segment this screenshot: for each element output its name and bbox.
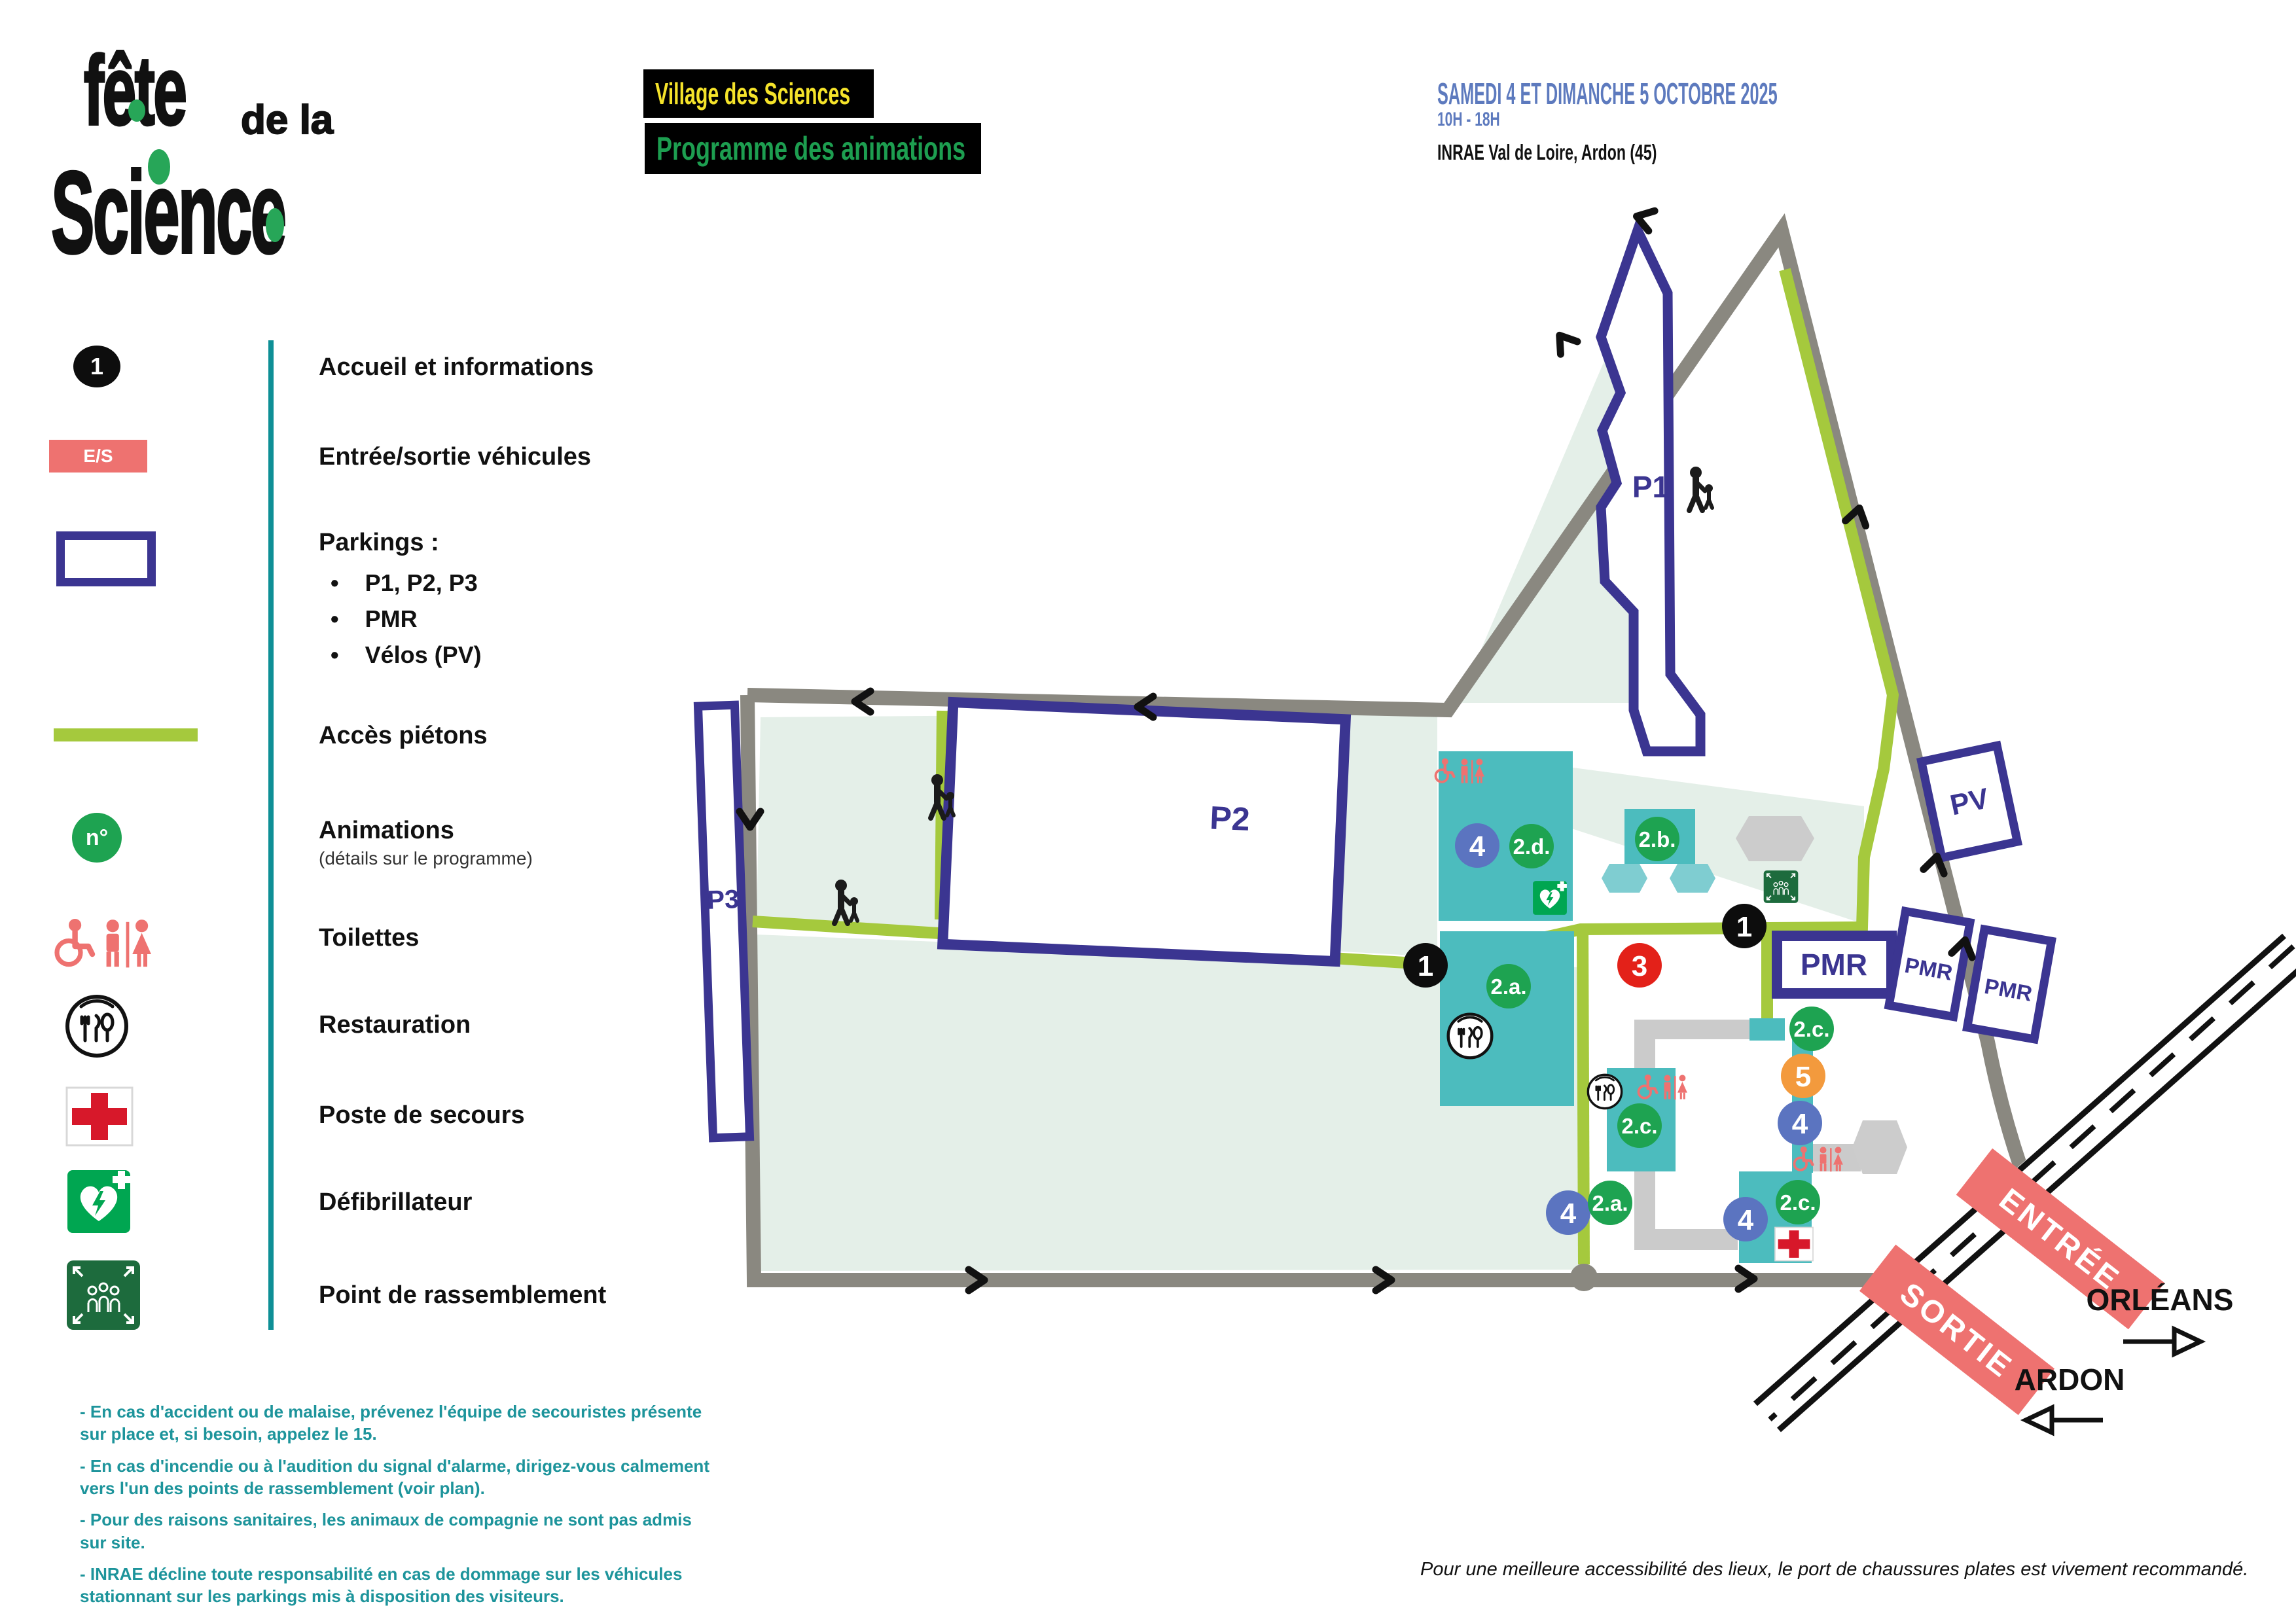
- logo-de-la: de la: [241, 97, 333, 143]
- safety-note: - INRAE décline toute responsabilité en …: [80, 1563, 721, 1608]
- marker-label: 4: [1792, 1108, 1808, 1140]
- building-2b-hex-right: [1670, 864, 1715, 893]
- logo-dot-icon: [148, 149, 170, 185]
- es-badge-icon: E/S: [49, 440, 147, 473]
- legend-secours-label: Poste de secours: [319, 1101, 525, 1130]
- defibrillator-icon: [67, 1169, 131, 1237]
- title-banner-1: Village des Sciences: [643, 69, 874, 118]
- first-aid-icon: [1775, 1227, 1813, 1260]
- title-banner-2-text: Programme des animations: [656, 130, 965, 168]
- event-hours: 10H - 18H: [1437, 109, 1500, 131]
- direction-signs: ORLÉANSARDON: [2015, 1283, 2234, 1433]
- marker-label: 2.c.: [1780, 1190, 1816, 1215]
- restauration-icon: [1588, 1075, 1621, 1108]
- animations-circle-icon: n°: [72, 813, 122, 863]
- map-marker-4: 4: [1546, 1190, 1590, 1235]
- marker-label: 4: [1469, 830, 1486, 863]
- legend-animations-sub: (détails sur le programme): [319, 848, 533, 869]
- rassemblement-icon: [65, 1259, 141, 1334]
- toilets-icon: [41, 915, 191, 973]
- map-marker-2c: 2.c.: [1617, 1103, 1662, 1148]
- safety-note: - Pour des raisons sanitaires, les anima…: [80, 1508, 721, 1554]
- legend-acces-label: Accès piétons: [319, 722, 488, 750]
- sign-arrow-icon: [2123, 1329, 2200, 1354]
- building-2b-hex-left: [1602, 864, 1647, 893]
- legend-parkings-bullet: • P1, P2, P3: [331, 569, 478, 597]
- marker-label: 2.a.: [1592, 1191, 1628, 1215]
- map-marker-2a: 2.a.: [1588, 1181, 1632, 1225]
- parking-outline: [942, 702, 1346, 961]
- parking-pmr: PMR: [1777, 936, 1892, 993]
- map-marker-3: 3: [1617, 943, 1662, 988]
- parking-p1-label: P1: [1632, 470, 1669, 504]
- map-marker-4: 4: [1778, 1101, 1822, 1145]
- parking-box-icon: [56, 531, 156, 586]
- parking-pv: PV: [1922, 745, 2018, 857]
- bullet-velos: Vélos (PV): [365, 641, 482, 668]
- pedestrian-icon: [1689, 467, 1713, 510]
- marker-label: 2.b.: [1639, 827, 1676, 851]
- first-aid-icon: [65, 1086, 134, 1150]
- bullet-pmr: PMR: [365, 605, 418, 632]
- map-marker-5: 5: [1781, 1054, 1825, 1098]
- sign-arrow-icon: [2026, 1408, 2103, 1433]
- roundabout: [1570, 1264, 1598, 1291]
- defibrillator-icon: [1533, 881, 1567, 915]
- parking-pmr: PMR: [1889, 911, 1970, 1016]
- rassemblement-icon: [1764, 870, 1799, 903]
- site-map: P1 P2P3PVPMRPMRPMR 42.d.2.b.1132.a.2.c.5…: [0, 0, 2296, 1623]
- parking-label: P3: [707, 885, 740, 915]
- parking-pmr: PMR: [1967, 929, 2052, 1039]
- green-line-icon: [54, 728, 198, 741]
- map-marker-4: 4: [1455, 823, 1499, 868]
- marker-label: 2.c.: [1621, 1114, 1657, 1138]
- corridor-bottom: [1634, 1229, 1738, 1250]
- safety-note: - En cas d'incendie ou à l'audition du s…: [80, 1455, 721, 1500]
- legend-parkings-bullet: • PMR: [331, 605, 418, 633]
- legend-parkings-label: Parkings :: [319, 529, 439, 557]
- legend-divider: [268, 340, 274, 1330]
- safety-note: - En cas d'accident ou de malaise, préve…: [80, 1400, 721, 1446]
- marker-label: 1: [1736, 911, 1752, 943]
- legend-es-label: Entrée/sortie véhicules: [319, 443, 591, 471]
- title-banner-1-text: Village des Sciences: [655, 76, 850, 111]
- marker-label: 4: [1560, 1198, 1577, 1230]
- map-marker-2b: 2.b.: [1635, 817, 1679, 861]
- safety-notes: - En cas d'accident ou de malaise, préve…: [80, 1400, 721, 1617]
- marker-label: 3: [1632, 950, 1647, 982]
- sign-label: ARDON: [2015, 1363, 2125, 1397]
- legend-animations-label: Animations: [319, 817, 454, 845]
- legend-accueil-label: Accueil et informations: [319, 353, 594, 382]
- bullet-p1p2p3: P1, P2, P3: [365, 569, 478, 596]
- legend-restauration-label: Restauration: [319, 1011, 471, 1039]
- marker-label: 2.c.: [1793, 1017, 1829, 1041]
- parking-label: P2: [1209, 799, 1251, 838]
- title-banner-2: Programme des animations: [645, 123, 981, 174]
- parking-label: PMR: [1801, 948, 1867, 982]
- poster-page: P1 P2P3PVPMRPMRPMR 42.d.2.b.1132.a.2.c.5…: [0, 0, 2296, 1623]
- map-marker-2d: 2.d.: [1509, 824, 1554, 868]
- logo-fete: fête: [84, 34, 185, 147]
- corridor-top-teal: [1749, 1018, 1785, 1041]
- accessibility-note: Pour une meilleure accessibilité des lie…: [1420, 1559, 2291, 1580]
- event-location: INRAE Val de Loire, Ardon (45): [1437, 140, 1657, 165]
- map-marker-4: 4: [1723, 1197, 1768, 1241]
- legend-parkings-bullet: • Vélos (PV): [331, 641, 482, 669]
- gray-hexagon-north: [1736, 816, 1814, 861]
- sign-label: ORLÉANS: [2087, 1283, 2234, 1317]
- restauration-icon: [1448, 1014, 1492, 1058]
- map-marker-1: 1: [1722, 904, 1767, 948]
- parking-p2: P2: [942, 702, 1346, 961]
- legend-toilettes-label: Toilettes: [319, 924, 419, 952]
- map-marker-2c: 2.c.: [1776, 1180, 1820, 1224]
- logo-dot-icon: [128, 99, 145, 122]
- logo-dot-icon: [266, 208, 284, 242]
- map-marker-2a: 2.a.: [1486, 964, 1531, 1008]
- marker-label: 4: [1738, 1204, 1754, 1236]
- legend-rassemblement-label: Point de rassemblement: [319, 1281, 606, 1310]
- legend-defibrillateur-label: Défibrillateur: [319, 1188, 472, 1217]
- marker-label: 1: [1418, 950, 1433, 982]
- map-marker-1: 1: [1403, 943, 1448, 988]
- marker-label: 2.a.: [1490, 974, 1526, 999]
- restauration-icon: [64, 993, 130, 1062]
- map-marker-2c: 2.c.: [1789, 1007, 1834, 1051]
- gray-hexagon-east: [1852, 1120, 1907, 1174]
- accueil-marker-icon: 1: [73, 346, 120, 387]
- sign-orléans: ORLÉANS: [2087, 1283, 2234, 1354]
- marker-label: 2.d.: [1513, 834, 1551, 859]
- marker-label: 5: [1795, 1061, 1811, 1093]
- event-date: SAMEDI 4 ET DIMANCHE 5 OCTOBRE 2025: [1437, 76, 1778, 111]
- traffic-chevron-icon: [1551, 329, 1577, 354]
